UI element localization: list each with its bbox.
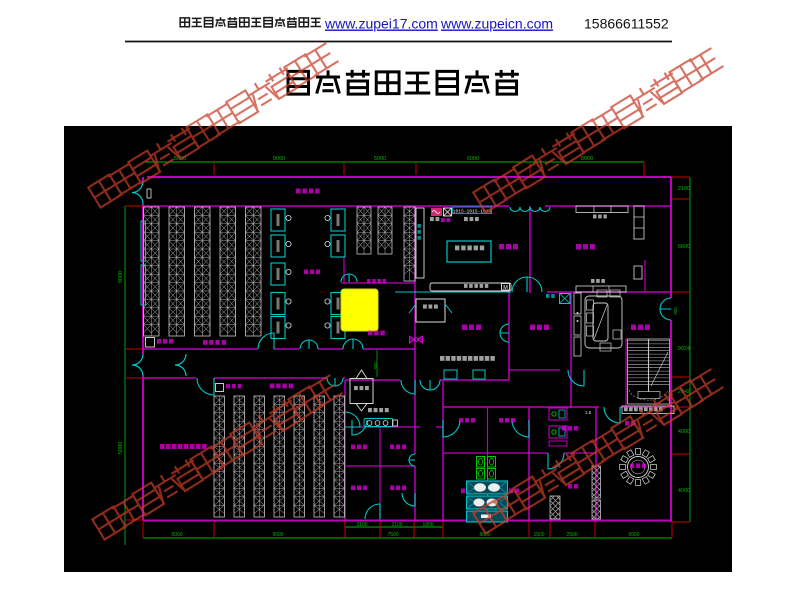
svg-text:5000: 5000 [118,442,124,454]
svg-text:6600: 6600 [678,244,690,250]
svg-text:5000: 5000 [374,156,386,162]
svg-text:9000: 9000 [118,271,124,283]
svg-text:1500: 1500 [533,532,544,538]
svg-text:2100: 2100 [356,522,367,528]
svg-text:9000: 9000 [273,156,285,162]
svg-text:9000: 9000 [272,532,283,538]
svg-text:1.5: 1.5 [585,410,592,415]
svg-text:www.zupeicn.com: www.zupeicn.com [440,16,553,32]
svg-text:1800: 1800 [422,522,433,528]
svg-text:9024: 9024 [678,346,690,352]
svg-text:4000: 4000 [678,488,690,494]
svg-text:M: M [503,285,508,291]
svg-text:2100: 2100 [678,186,690,192]
svg-text:4000: 4000 [678,429,690,435]
svg-text:8000: 8000 [581,156,593,162]
svg-text:900: 900 [673,307,678,315]
svg-text:15866611552: 15866611552 [584,16,669,32]
svg-text:900: 900 [373,362,378,370]
svg-text:7500: 7500 [387,532,398,538]
svg-text:2500: 2500 [566,532,577,538]
svg-text:2100: 2100 [391,522,402,528]
svg-text:6000: 6000 [467,156,479,162]
svg-text:5000: 5000 [171,532,182,538]
svg-text:5000: 5000 [628,532,639,538]
svg-text:www.zupei17.com: www.zupei17.com [324,16,438,32]
